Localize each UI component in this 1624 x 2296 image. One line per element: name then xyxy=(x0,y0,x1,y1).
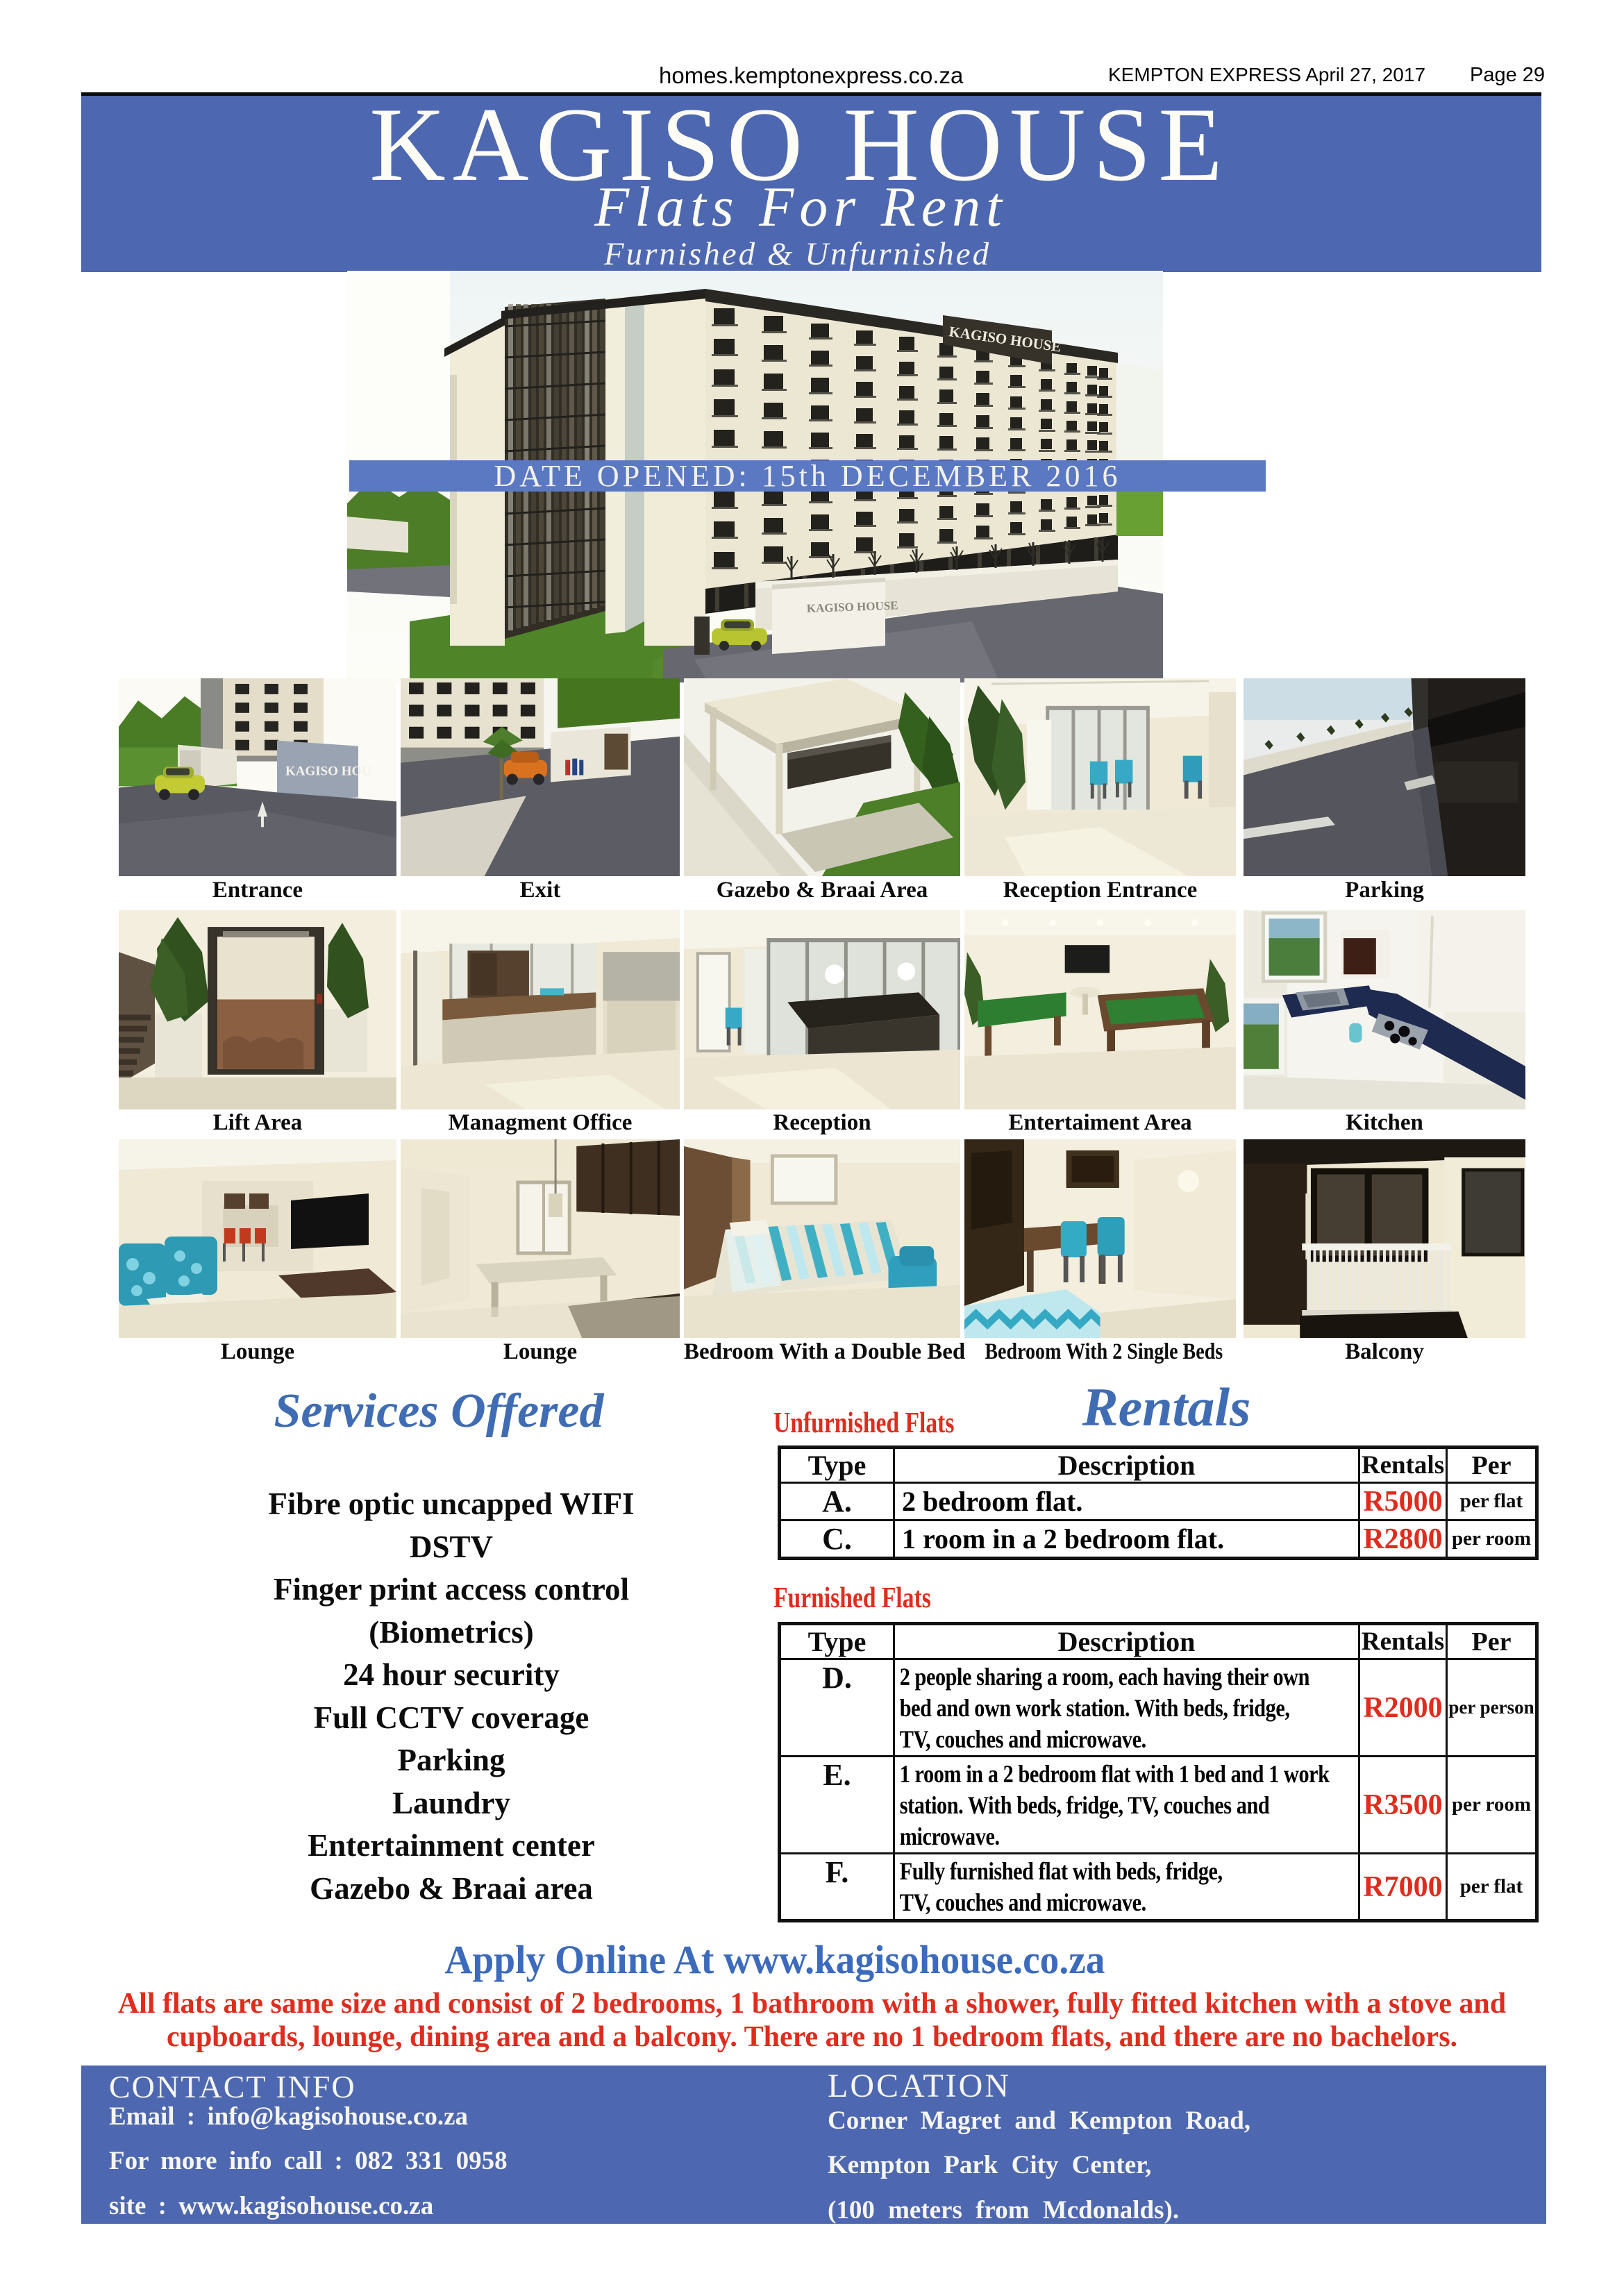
svg-text:KAGISO HOU: KAGISO HOU xyxy=(285,764,371,779)
